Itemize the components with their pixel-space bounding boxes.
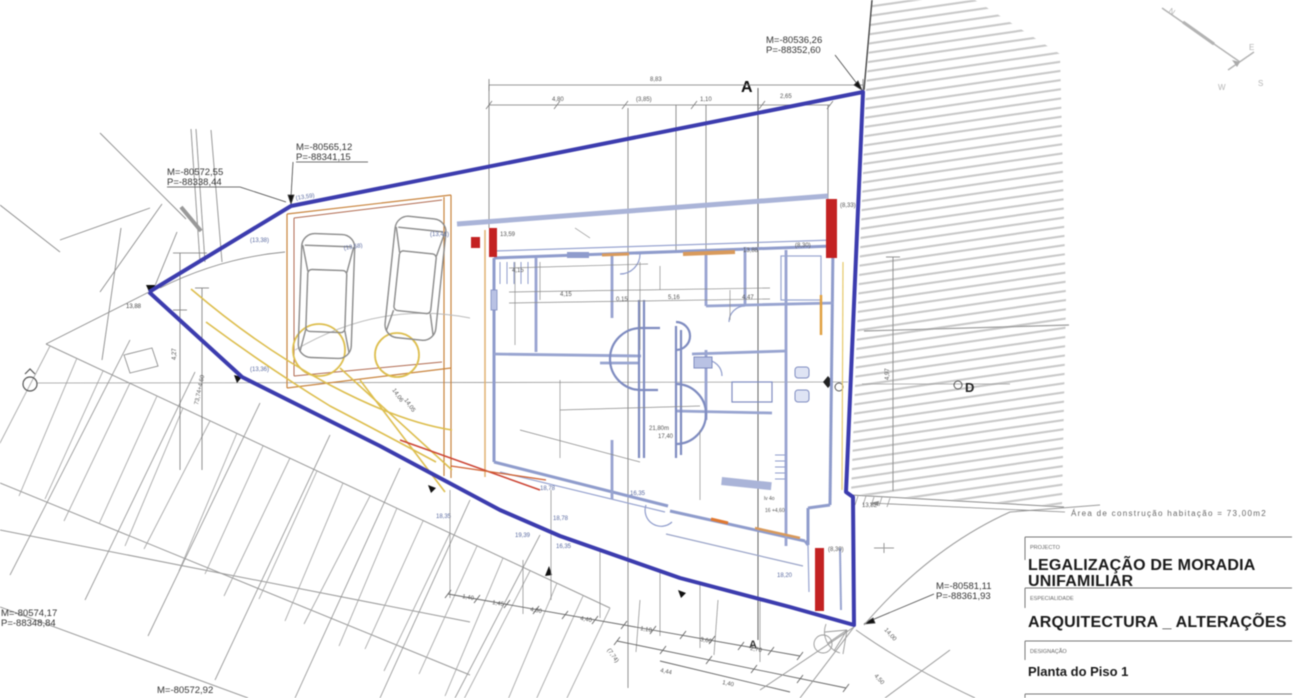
- svg-text:(8,33): (8,33): [840, 203, 856, 209]
- svg-text:P=-88338,44: P=-88338,44: [167, 177, 222, 188]
- svg-text:4,15: 4,15: [512, 268, 524, 274]
- svg-text:18,78: 18,78: [553, 516, 569, 522]
- svg-text:0,15: 0,15: [616, 297, 628, 303]
- svg-text:DESIGNAÇÃO: DESIGNAÇÃO: [1030, 648, 1067, 655]
- svg-text:13,88: 13,88: [743, 248, 759, 254]
- svg-text:8,83: 8,83: [650, 77, 662, 83]
- svg-text:P=-88361,93: P=-88361,93: [936, 591, 991, 602]
- svg-text:M=-80572,92: M=-80572,92: [157, 685, 213, 696]
- svg-text:D: D: [965, 380, 974, 395]
- svg-text:16,35: 16,35: [556, 544, 572, 550]
- svg-text:P=-88341,15: P=-88341,15: [296, 152, 351, 163]
- svg-text:lv 4o: lv 4o: [764, 496, 775, 502]
- svg-text:(13,36): (13,36): [250, 367, 269, 373]
- svg-text:18,20: 18,20: [777, 573, 793, 579]
- svg-text:LEGALIZAÇÃO DE MORADIA: LEGALIZAÇÃO DE MORADIA: [1028, 554, 1256, 574]
- svg-text:4,47: 4,47: [742, 295, 754, 301]
- svg-text:21,80m: 21,80m: [649, 426, 669, 432]
- svg-text:13,59: 13,59: [500, 232, 516, 238]
- svg-text:19,39: 19,39: [515, 533, 531, 539]
- svg-text:A: A: [741, 79, 753, 96]
- svg-text:4,27: 4,27: [172, 348, 178, 360]
- svg-text:18,78: 18,78: [540, 486, 556, 492]
- svg-text:P=-88352,60: P=-88352,60: [766, 45, 821, 56]
- svg-text:16 +4,60: 16 +4,60: [765, 508, 785, 514]
- svg-text:2,65: 2,65: [780, 94, 792, 100]
- svg-text:ESPECIALIDADE: ESPECIALIDADE: [1030, 596, 1074, 602]
- svg-text:ARQUITECTURA _ ALTERAÇÕES: ARQUITECTURA _ ALTERAÇÕES: [1028, 611, 1287, 631]
- svg-text:4,80: 4,80: [552, 97, 564, 103]
- svg-text:(3,85): (3,85): [636, 97, 652, 103]
- svg-text:1,10: 1,10: [700, 97, 712, 103]
- svg-text:(8,30): (8,30): [828, 547, 844, 553]
- svg-text:Área de construção habitação =: Área de construção habitação = 73,00m2: [1071, 509, 1267, 518]
- svg-text:13,88: 13,88: [126, 304, 142, 310]
- svg-text:(13,41): (13,41): [430, 232, 449, 238]
- svg-text:4,15: 4,15: [560, 292, 572, 298]
- svg-text:18,35: 18,35: [436, 514, 452, 520]
- svg-text:(13,38): (13,38): [250, 238, 269, 244]
- svg-text:4,97: 4,97: [885, 368, 891, 380]
- svg-text:(8,30): (8,30): [795, 243, 811, 249]
- svg-text:E: E: [1249, 43, 1254, 52]
- svg-text:UNIFAMILIAR: UNIFAMILIAR: [1028, 573, 1134, 590]
- svg-text:PROJECTO: PROJECTO: [1030, 545, 1061, 551]
- svg-text:P=-88348,84: P=-88348,84: [1, 618, 56, 629]
- svg-text:Planta do Piso 1: Planta do Piso 1: [1028, 664, 1128, 679]
- svg-text:16,35: 16,35: [630, 491, 646, 497]
- svg-text:S: S: [1258, 79, 1263, 88]
- svg-text:W: W: [1218, 83, 1226, 92]
- svg-text:17,40: 17,40: [658, 434, 674, 440]
